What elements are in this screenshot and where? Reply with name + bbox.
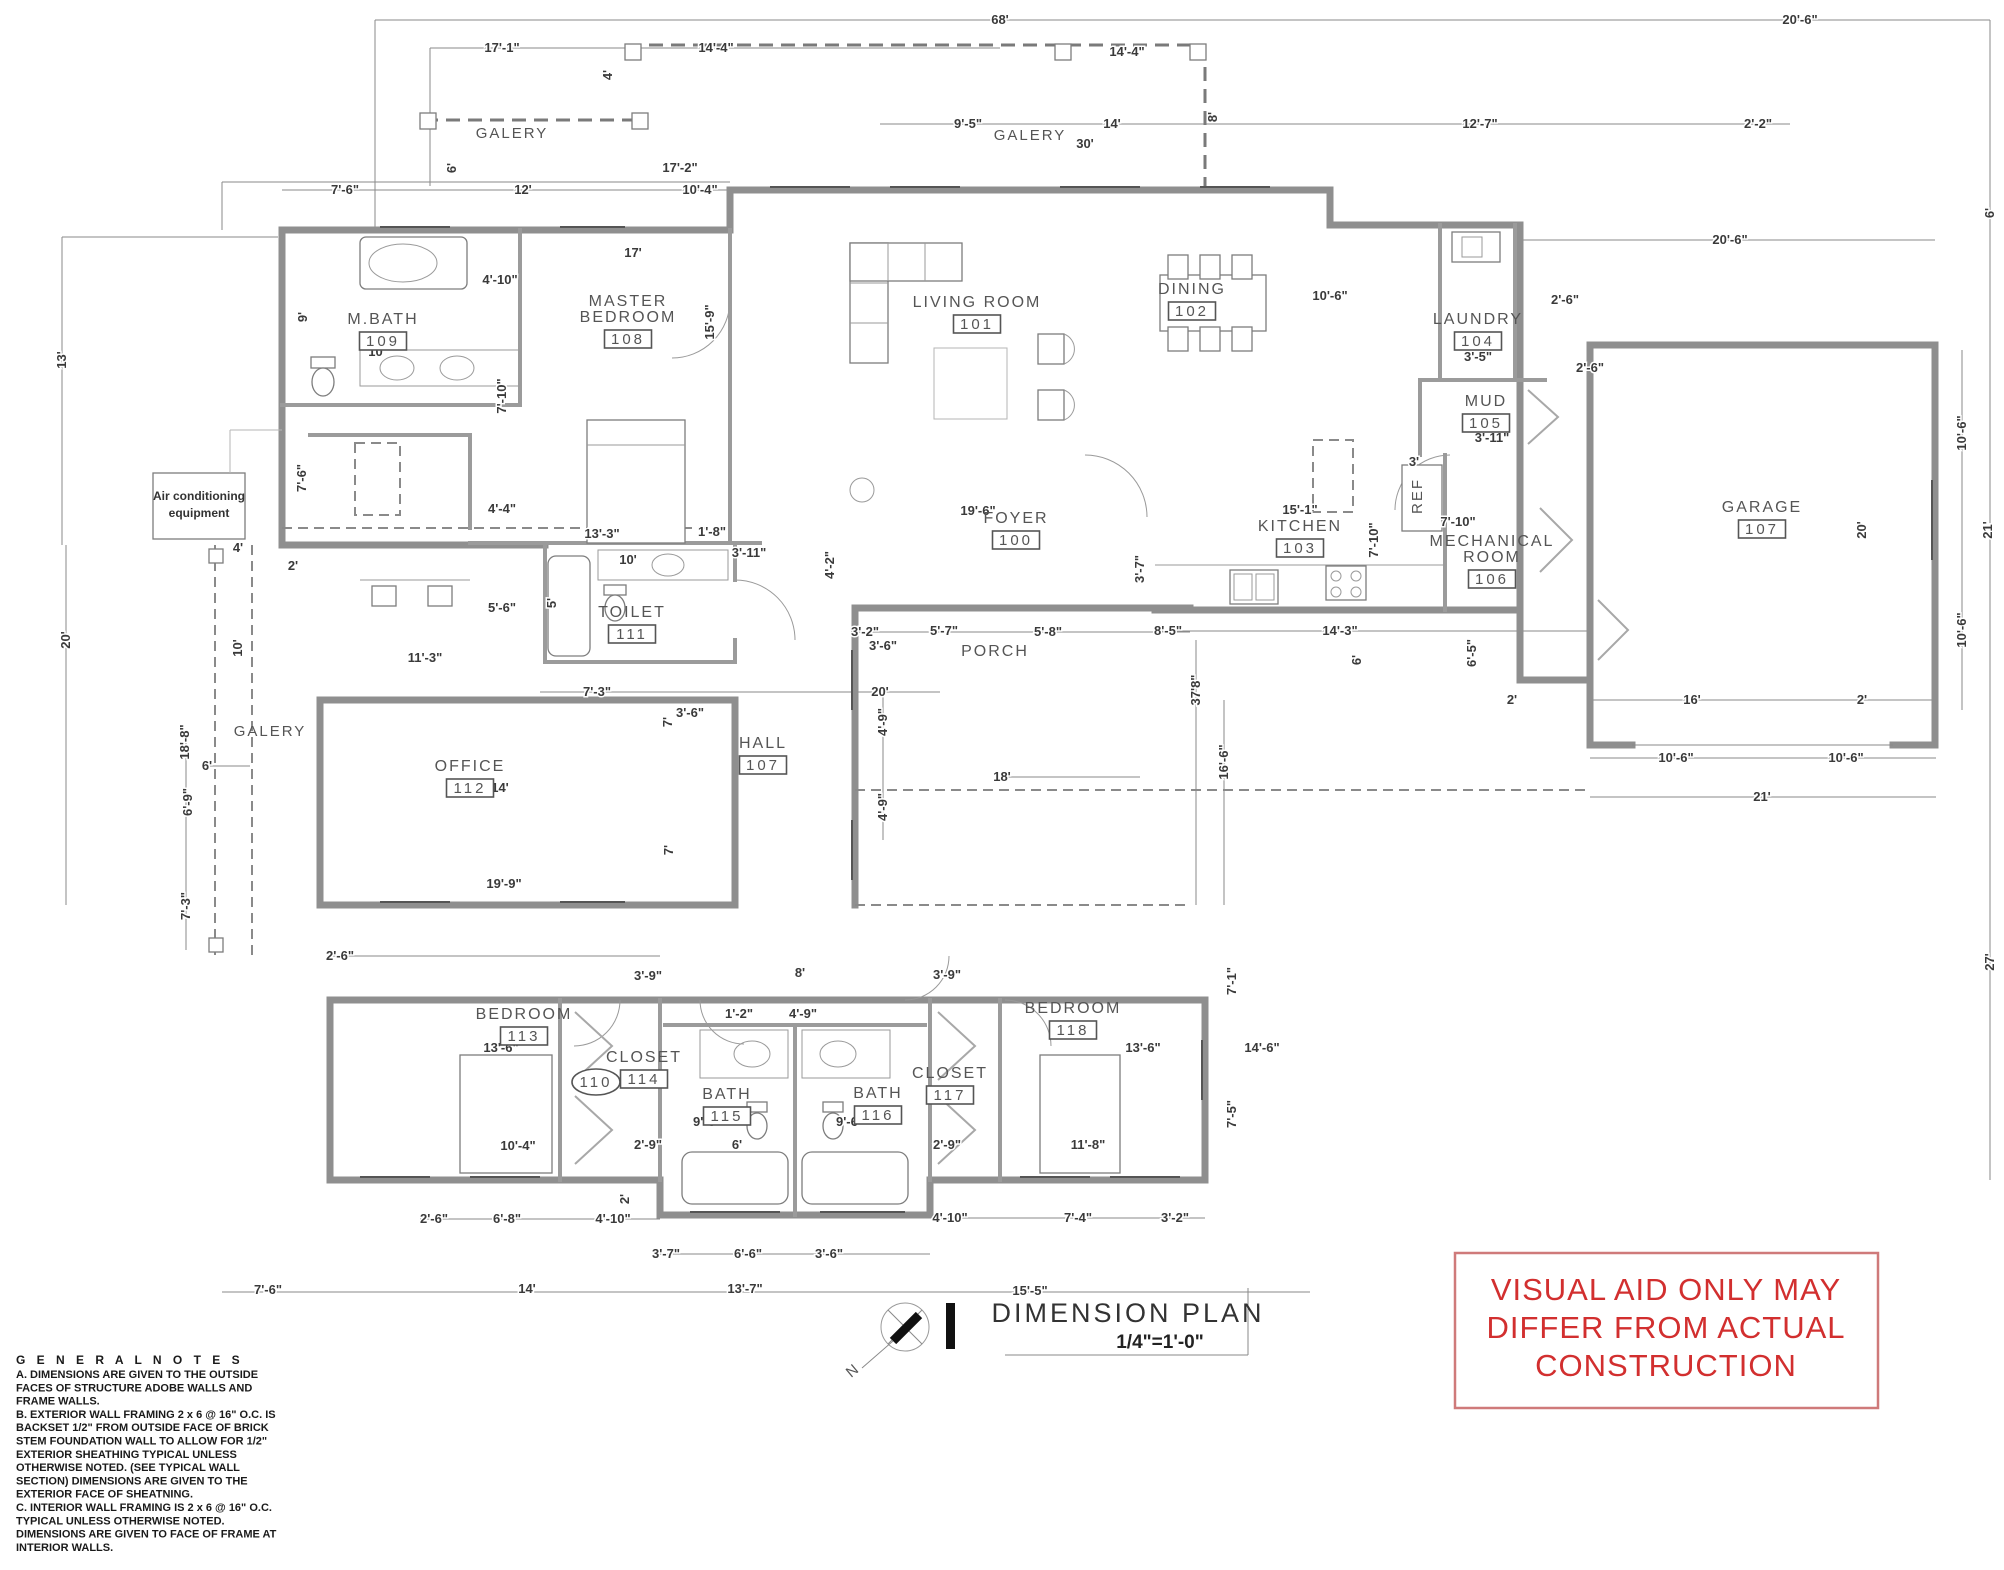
plan-label: REF [1409,478,1426,514]
pergola-trellis [420,44,1206,188]
room-name: MECHANICAL [1430,533,1555,550]
dim-label: 7'-3" [583,684,611,699]
dim-label: 15'-1" [1282,502,1317,517]
notes-line: FACES OF STRUCTURE ADOBE WALLS AND [16,1382,252,1394]
dim-label: 10'-6" [1954,612,1969,647]
dim-label: 20' [58,631,73,649]
bed-118 [1040,1055,1120,1173]
dim-label: 20' [871,684,889,699]
north-bar [946,1303,955,1349]
room-name: KITCHEN [1258,518,1342,535]
plan-title: DIMENSION PLAN [991,1298,1264,1328]
title-block: DIMENSION PLAN 1/4"=1'-0" [991,1288,1264,1355]
dim-label: 13' [54,351,69,369]
plan-label: GALERY [234,723,307,740]
dim-label: 1'-8" [698,524,726,539]
dim-label: 3'-5" [1464,349,1492,364]
room-number: 108 [611,331,645,348]
dim-label: 13'-3" [584,526,619,541]
room-name: BATH [853,1085,902,1102]
room-name: OFFICE [435,758,506,775]
dim-label: 20' [1854,521,1869,539]
plan-scale: 1/4"=1'-0" [1116,1332,1204,1353]
dim-label: 7'-1" [1224,967,1239,995]
dim-label: 1'-2" [725,1006,753,1021]
dim-label: 12' [514,182,532,197]
master-toilet-tank [311,357,335,368]
dim-label: 7'-6" [294,464,309,492]
oval-label: 110 [580,1074,613,1091]
dim-label: 5' [544,598,559,608]
dim-label: 3'-6" [676,705,704,720]
notes-line: BACKSET 1/2" FROM OUTSIDE FACE OF BRICK [16,1422,269,1434]
dim-label: 4'-2" [822,551,837,579]
dim-label: 2'-6" [326,948,354,963]
room-name: FOYER [983,510,1048,527]
room-name: LIVING ROOM [913,294,1042,311]
dim-label: 7' [660,717,675,727]
dim-label: 7'-6" [331,182,359,197]
room-number: 103 [1283,540,1317,557]
room-number: 112 [454,780,487,797]
dim-label: 4'-9" [789,1006,817,1021]
dim-label: 2'-9" [634,1137,662,1152]
dim-label: 3'-6" [815,1246,843,1261]
dim-label: 21' [1753,789,1771,804]
plan-label: GALERY [476,125,549,142]
dim-label: 4'-10" [482,272,517,287]
room-name: BEDROOM [1025,1000,1122,1017]
notes-line: FRAME WALLS. [16,1396,100,1408]
dim-label: 2'-6" [420,1211,448,1226]
room-number: 109 [366,333,400,350]
dim-label: 14' [1103,116,1121,131]
dim-label: 13'-6" [1125,1040,1160,1055]
dim-label: 16' [1683,692,1701,707]
dim-label: 18' [993,769,1011,784]
notes-line: INTERIOR WALLS. [16,1542,113,1554]
room-name: BEDROOM [580,309,677,326]
notes-line: EXTERIOR FACE OF SHEATNING. [16,1489,193,1501]
dim-label: 10'-6" [1828,750,1863,765]
ac-label-line1: Air conditioning [153,489,245,503]
dim-label: 6' [1349,655,1364,665]
notes-line: C. INTERIOR WALL FRAMING IS 2 x 6 @ 16" … [16,1502,272,1514]
ac-label-line2: equipment [169,506,230,520]
dim-label: 19'-9" [486,876,521,891]
room-number: 114 [628,1071,661,1088]
floor-plan-page: DIMENSION PLAN 1/4"=1'-0" 68'20'-6"17'-1… [0,0,2004,1570]
dim-label: 6'-8" [493,1211,521,1226]
dim-label: 7'-3" [178,892,193,920]
dim-label: 6' [202,758,212,773]
room-number: 107 [1745,521,1779,538]
room-name: HALL [739,735,787,752]
notes-line: TYPICAL UNLESS OTHERWISE NOTED. [16,1515,225,1527]
dim-label: 14' [518,1281,536,1296]
dim-label: 7'-6" [254,1282,282,1297]
warning-text: VISUAL AID ONLY MAYDIFFER FROM ACTUALCON… [1486,1272,1845,1383]
notes-line: A. DIMENSIONS ARE GIVEN TO THE OUTSIDE [16,1369,258,1381]
general-notes: G E N E R A L N O T E SA. DIMENSIONS ARE… [16,1353,277,1554]
dim-label: 11'-3" [408,650,443,665]
dim-label: 7'-5" [1224,1100,1239,1128]
notes-line: OTHERWISE NOTED. (SEE TYPICAL WALL [16,1462,240,1474]
dim-label: 3'-6" [869,638,897,653]
notes-heading: G E N E R A L N O T E S [16,1353,244,1367]
bed-113 [460,1055,552,1173]
room-name: CLOSET [912,1065,988,1082]
dim-label: 14'-4" [1109,44,1144,59]
room-name: BATH [702,1086,751,1103]
dim-label: 3'-7" [1132,555,1147,583]
dim-label: 6' [732,1137,742,1152]
dim-label: 17'-2" [662,160,697,175]
dim-label: 2' [617,1194,632,1204]
dim-label: 6'-9" [180,788,195,816]
dim-label: 8'-5" [1154,623,1182,638]
room-name: GARAGE [1722,499,1802,516]
dim-label: 2' [288,558,298,573]
dim-label: 10'-6" [1658,750,1693,765]
dim-label: 68' [991,12,1009,27]
room-number: 102 [1175,303,1209,320]
dim-label: 7'-4" [1064,1210,1092,1225]
dim-label: 3'-11" [732,545,767,560]
room-name: ROOM [1463,549,1521,566]
dim-label: 3'-9" [634,968,662,983]
dim-label: 20'-6" [1782,12,1817,27]
room-number: 118 [1057,1022,1090,1039]
tub-116 [802,1152,908,1204]
dim-label: 4'-10" [932,1210,967,1225]
master-bed [587,420,685,543]
room-number: 104 [1461,333,1495,350]
dim-label: 2' [1857,692,1867,707]
room-number: 106 [1475,571,1509,588]
room-number: 117 [934,1087,967,1104]
dim-label: 6'-6" [734,1246,762,1261]
room-number: 105 [1469,415,1503,432]
dim-label: 7'-10" [1366,522,1381,557]
dim-label: 2'-2" [1744,116,1772,131]
dim-label: 17'-1" [484,40,519,55]
dim-label: 3'-2" [1161,1210,1189,1225]
room-number: 107 [746,757,780,774]
dim-label: 3'-9" [933,967,961,982]
dim-label: 7' [661,845,676,855]
room-name: TOILET [598,604,666,621]
dim-label: 13'-7" [727,1281,762,1296]
dim-label: 10'-6" [1312,288,1347,303]
dim-label: 37'8" [1188,675,1203,706]
dim-label: 2'-6" [1551,292,1579,307]
dim-label: 21' [1980,521,1995,539]
room-number: 101 [960,316,994,333]
dim-label: 14'-6" [1244,1040,1279,1055]
dim-label: 5'-7" [930,623,958,638]
notes-line: STEM FOUNDATION WALL TO ALLOW FOR 1/2" [16,1436,267,1448]
notes-line: SECTION) DIMENSIONS ARE GIVEN TO THE [16,1475,248,1487]
room-name: CLOSET [606,1049,682,1066]
dim-label: 4'-9" [875,793,890,821]
dim-label: 5'-6" [488,600,516,615]
interior-walls [209,225,1590,1215]
dim-label: 4'-4" [488,501,516,516]
dim-label: 30' [1076,136,1094,151]
dim-label: 17' [624,245,642,260]
dim-label: 5'-8" [1034,624,1062,639]
dimension-plan-drawing: DIMENSION PLAN 1/4"=1'-0" 68'20'-6"17'-1… [0,0,2004,1570]
room-number: 115 [711,1108,744,1125]
dim-label: 14'-3" [1322,623,1357,638]
fixtures [153,232,1500,1204]
room-name: M.BATH [347,311,418,328]
dim-label: 9'-5" [954,116,982,131]
plan-label: GALERY [994,127,1067,144]
dim-label: 6'-5" [1464,639,1479,667]
dim-label: 10'-4" [682,182,717,197]
dim-label: 7'-10" [494,378,509,413]
dim-label: 3'-7" [652,1246,680,1261]
dim-label: 4'-10" [595,1211,630,1226]
room-number: 100 [999,532,1033,549]
dim-label: 6' [1982,208,1997,218]
dim-label: 15'-5" [1012,1283,1047,1298]
plan-label: N [843,1360,864,1381]
north-arrow [862,1303,955,1368]
dim-label: 8' [1205,112,1220,122]
notes-line: B. EXTERIOR WALL FRAMING 2 x 6 @ 16" O.C… [16,1409,276,1421]
dim-label: 3' [1409,454,1419,469]
dim-label: 4'-9" [875,708,890,736]
dim-label: 10' [230,639,245,657]
room-name: DINING [1158,281,1226,298]
dim-label: 10' [619,552,637,567]
kitchen-sink [1230,570,1278,604]
room-number: 116 [862,1107,895,1124]
dim-label: 7'-10" [1440,514,1475,529]
tub-115 [682,1152,788,1204]
armchair [1038,334,1064,364]
dim-label: 8' [795,965,805,980]
armchair [1038,390,1064,420]
dim-label: 6' [444,163,459,173]
room-name: BEDROOM [476,1006,573,1023]
dim-label: 10'-4" [500,1138,535,1153]
notes-line: DIMENSIONS ARE GIVEN TO FACE OF FRAME AT [16,1529,277,1541]
room-number: 111 [616,626,648,643]
dim-label: 3'-2" [851,624,879,639]
dim-label: 2'-9" [933,1137,961,1152]
room-name: PORCH [961,643,1029,660]
dim-label: 4' [600,70,615,80]
dim-label: 20'-6" [1712,232,1747,247]
dim-label: 27' [1982,953,1997,971]
dim-label: 4' [233,540,243,555]
room-name: MASTER [589,293,668,310]
dim-label: 12'-7" [1462,116,1497,131]
dim-label: 14'-4" [698,40,733,55]
room-number: 113 [508,1028,541,1045]
warning-line: DIFFER FROM ACTUAL [1486,1310,1845,1345]
dim-label: 16'-6" [1216,744,1231,779]
notes-line: EXTERIOR SHEATHING TYPICAL UNLESS [16,1449,237,1461]
room-name: LAUNDRY [1433,311,1523,328]
dim-label: 10'-6" [1954,415,1969,450]
room-name: MUD [1465,393,1507,410]
dim-label: 15'-9" [702,304,717,339]
warning-line: CONSTRUCTION [1535,1348,1797,1383]
dim-label: 11'-8" [1071,1137,1106,1152]
warning-line: VISUAL AID ONLY MAY [1491,1272,1841,1307]
dim-label: 9' [295,312,310,322]
dim-label: 18'-8" [177,724,192,759]
dim-label: 2'-6" [1576,360,1604,375]
rug [934,348,1007,419]
dim-label: 2' [1507,692,1517,707]
